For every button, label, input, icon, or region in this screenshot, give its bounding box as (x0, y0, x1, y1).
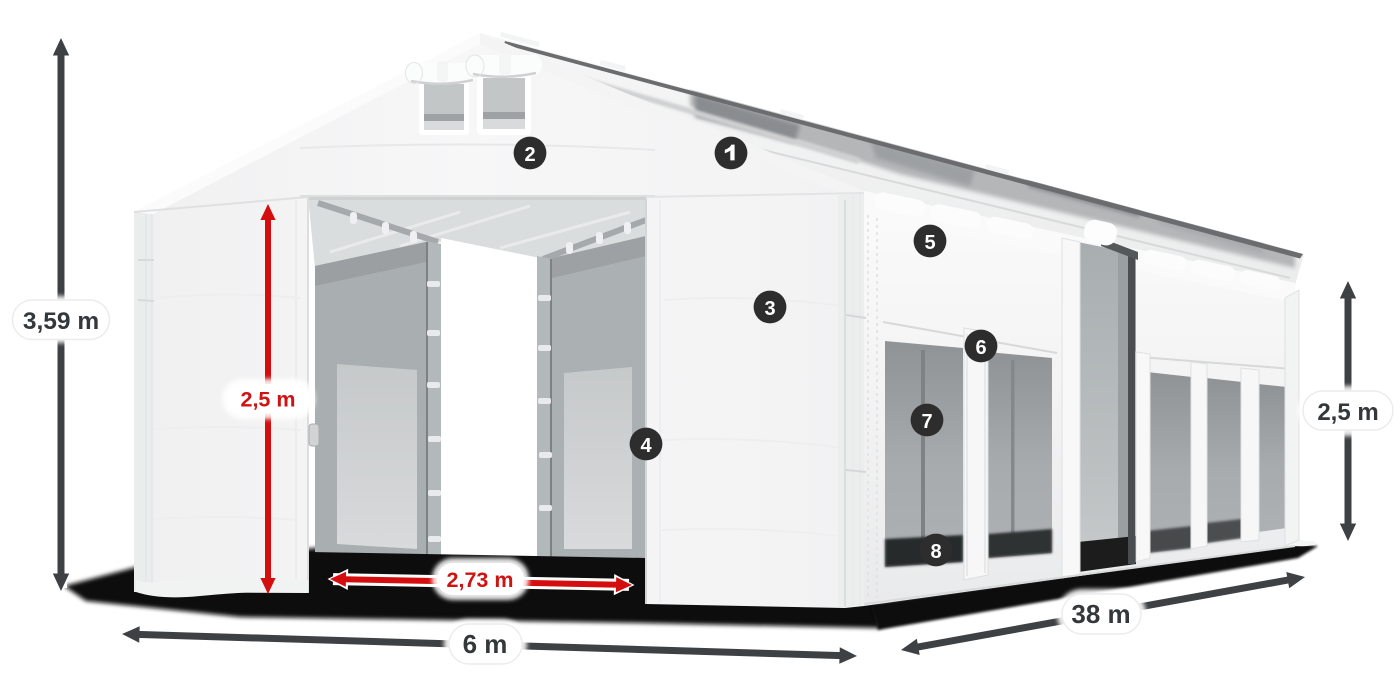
svg-text:2,5 m: 2,5 m (1317, 399, 1378, 426)
svg-text:6: 6 (975, 337, 986, 359)
svg-text:6 m: 6 m (463, 629, 508, 659)
svg-text:2: 2 (524, 144, 535, 166)
svg-text:3: 3 (764, 298, 775, 320)
svg-text:7: 7 (921, 411, 932, 433)
svg-text:38 m: 38 m (1071, 599, 1130, 629)
svg-text:2,5 m: 2,5 m (241, 388, 296, 412)
svg-text:8: 8 (930, 541, 941, 563)
svg-text:2,73 m: 2,73 m (447, 568, 514, 592)
svg-text:4: 4 (640, 435, 652, 457)
svg-text:5: 5 (924, 232, 935, 254)
svg-text:3,59 m: 3,59 m (23, 308, 99, 335)
